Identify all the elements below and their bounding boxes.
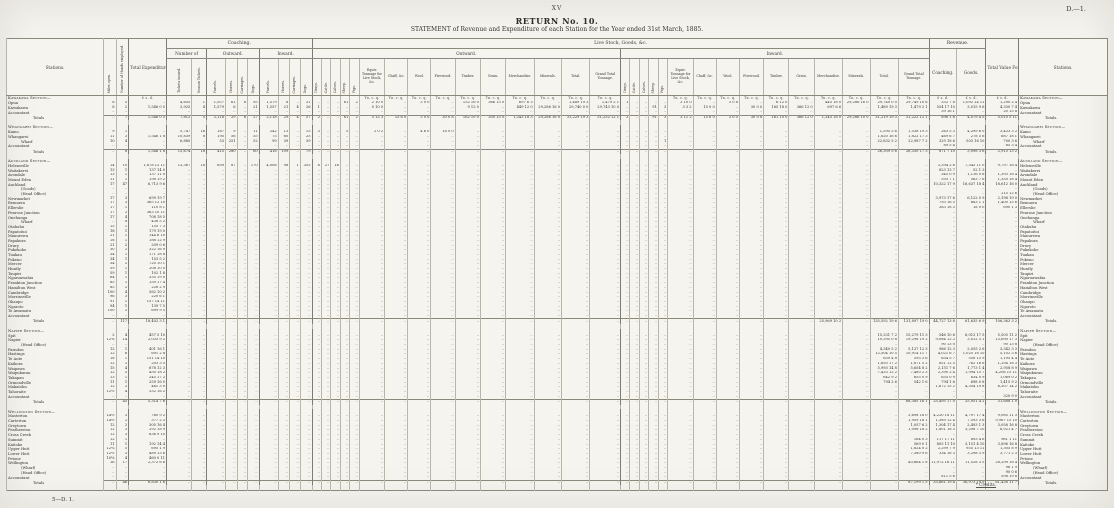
- col-header-in-chaff: Chaff, &c.: [693, 59, 716, 96]
- col-header-out-grand-total-tonnage: Grand Total Tonnage.: [590, 59, 621, 96]
- col-header-in-timber: Timber.: [764, 59, 789, 96]
- cell-rc: 25,495 17 0: [929, 400, 956, 405]
- cell-ih: [278, 485, 290, 490]
- cell-m: [103, 485, 116, 490]
- credits-footnote: * Credits.: [976, 482, 996, 488]
- cell-rc: [929, 485, 956, 490]
- col-header-out-merchandise: Merchandise.: [506, 59, 534, 96]
- cell-oti: [455, 485, 480, 490]
- cell-ome: [506, 485, 534, 490]
- col-header-in-firewood: Firewood.: [739, 59, 763, 96]
- cell-ito: 31,219 19 3: [870, 115, 898, 120]
- col-header-tickets-issued: Tickets issued.: [167, 59, 192, 96]
- col-header-in-pigs: Pigs.: [658, 59, 667, 96]
- col-header-in-total: Total.: [870, 59, 898, 96]
- col-header-in-sheep: Sheep.: [649, 59, 658, 96]
- cell-ime: [814, 485, 842, 490]
- cell-od: [248, 485, 260, 490]
- cell-oc: [237, 485, 248, 490]
- col-header-in-drays: Drays.: [621, 59, 630, 96]
- col-header-stations-right: Stations.: [1019, 39, 1108, 96]
- col-header-out-carriages: Carriages.: [237, 59, 248, 96]
- cell-i4: [649, 485, 658, 490]
- station-name-right: [1019, 485, 1108, 490]
- cell-iwo: [716, 485, 739, 490]
- col-header-out-parcels: Parcels.: [207, 59, 226, 96]
- col-header-out-dogs: Dogs.: [248, 59, 260, 96]
- cell-ich: [693, 485, 716, 490]
- cell-o2: [321, 485, 330, 490]
- cell-imi: 29,286 10 0: [843, 115, 870, 120]
- header-row-groups: Stations. Miles open. Number of Hands em…: [7, 39, 1108, 49]
- col-header-in-horses: Horses.: [278, 59, 290, 96]
- subgroup-goods-outward: Outward.: [312, 49, 621, 59]
- cell-id: [300, 485, 312, 490]
- cell-omi: 29,286 16 0: [534, 115, 561, 120]
- cell-op: [207, 485, 226, 490]
- cell-rc: 44,727 13 8: [929, 319, 956, 324]
- col-header-in-equiv-tonnage: Equiv. Tonnage for Live Stock, &c.: [668, 59, 693, 96]
- table-body: Kawakawa Section—£ s. d.Tn. c. q.Tn. c. …: [7, 96, 1108, 491]
- cell-i2: [630, 485, 639, 490]
- col-header-in-merchandise: Merchandise.: [814, 59, 842, 96]
- col-header-revenue-coaching: Coaching.: [929, 49, 956, 96]
- cell-ogt: [590, 485, 621, 490]
- col-header-stations: Stations.: [7, 39, 104, 96]
- col-header-out-equiv-tonnage: Equiv. Tonnage for Live Stock, &c.: [359, 59, 384, 96]
- cell-o1: [312, 485, 321, 490]
- subgroup-number-of: Number of: [167, 49, 207, 59]
- col-header-miles-open: Miles open.: [103, 39, 116, 96]
- col-header-out-chaff: Chaff, &c.: [385, 59, 408, 96]
- col-header-out-grain: Grain.: [480, 59, 505, 96]
- col-header-total-expenditure: Total Expenditure.: [129, 39, 167, 96]
- cell-oet: [359, 485, 384, 490]
- subgroup-coaching-outward: Outward.: [207, 49, 260, 59]
- cell-och: [385, 485, 408, 490]
- group-header-coaching: Coaching.: [167, 39, 312, 49]
- cell-ime: 25,969 10 2: [814, 319, 842, 324]
- cell-ti: [167, 485, 192, 490]
- col-header-in-minerals: Minerals.: [843, 59, 870, 96]
- statement-subtitle: STATEMENT of Revenue and Expenditure of …: [0, 26, 1114, 33]
- col-header-out-pigs: Pigs.: [350, 59, 359, 96]
- cell-igt: 131,897 19 0: [898, 319, 929, 324]
- col-header-in-grand-total-tonnage: Grand Total Tonnage.: [898, 59, 929, 96]
- cell-iti: [764, 485, 789, 490]
- page-number: XV: [0, 5, 1114, 12]
- col-header-out-firewood: Firewood.: [431, 59, 455, 96]
- col-header-in-calves: Calves.: [639, 59, 648, 96]
- scanned-return-page: XV D.—1. RETURN No. 10. STATEMENT of Rev…: [0, 0, 1114, 508]
- col-header-out-sheep: Sheep.: [340, 59, 349, 96]
- document-reference: D.—1.: [1066, 5, 1086, 13]
- col-header-out-total: Total.: [562, 59, 590, 96]
- col-header-in-parcels: Parcels.: [259, 59, 278, 96]
- cell-i3: [639, 485, 648, 490]
- cell-owo: [408, 485, 431, 490]
- cell-ogr: [480, 485, 505, 490]
- cell-st: [192, 485, 207, 490]
- cell-omi: [534, 485, 561, 490]
- col-header-out-wool: Wool.: [408, 59, 431, 96]
- imprint-footer: 5—D. 1.: [52, 497, 74, 503]
- cell-o5: [350, 485, 359, 490]
- col-header-hands-employed: Number of Hands employed.: [116, 39, 129, 96]
- spacer-row: [7, 485, 1108, 490]
- subgroup-coaching-inward: Inward.: [259, 49, 312, 59]
- col-header-revenue-goods: Goods.: [956, 49, 985, 96]
- group-header-livestock-goods: Live Stock, Goods, &c.: [312, 39, 929, 49]
- cell-ito: [870, 485, 898, 490]
- cell-o3: [331, 485, 340, 490]
- cell-ito: 135,592 19 6: [870, 319, 898, 324]
- cell-o4: [340, 485, 349, 490]
- cell-iet: [668, 485, 693, 490]
- col-header-out-drays: Drays.: [312, 59, 321, 96]
- cell-igr: [789, 485, 814, 490]
- cell-ic: [290, 485, 301, 490]
- col-header-total-value-forwarded: Total Value Forwarded.: [986, 39, 1019, 96]
- col-header-in-grain: Grain.: [789, 59, 814, 96]
- col-header-in-cattle: Cattle.: [630, 59, 639, 96]
- cell-oto: [562, 485, 590, 490]
- col-header-in-dogs: Dogs.: [300, 59, 312, 96]
- cell-rc: 35,661 19 4: [929, 480, 956, 485]
- col-header-out-timber: Timber.: [455, 59, 480, 96]
- stations-return-table: Stations. Miles open. Number of Hands em…: [6, 38, 1108, 491]
- cell-ex: [129, 485, 167, 490]
- col-header-out-calves: Calves.: [331, 59, 340, 96]
- cell-oh: [226, 485, 238, 490]
- col-header-out-minerals: Minerals.: [534, 59, 561, 96]
- cell-ifi: [739, 485, 763, 490]
- cell-igt: [898, 485, 929, 490]
- col-header-in-wool: Wool.: [716, 59, 739, 96]
- col-header-out-horses: Horses.: [226, 59, 238, 96]
- cell-imi: [843, 485, 870, 490]
- cell-h: [116, 485, 129, 490]
- station-name: [7, 485, 104, 490]
- col-header-out-cattle: Cattle.: [321, 59, 330, 96]
- subgroup-goods-inward: Inward.: [621, 49, 930, 59]
- cell-i1: [621, 485, 630, 490]
- group-header-revenue: Revenue.: [929, 39, 986, 49]
- col-header-season-tickets: Season Tickets.: [192, 59, 207, 96]
- header-row-subgroups: Number of Outward. Inward. Outward. Inwa…: [7, 49, 1108, 59]
- cell-ip: [259, 485, 278, 490]
- cell-ofi: [431, 485, 455, 490]
- col-header-in-carriages: Carriages.: [290, 59, 301, 96]
- cell-i5: [658, 485, 667, 490]
- return-title: RETURN No. 10.: [0, 16, 1114, 26]
